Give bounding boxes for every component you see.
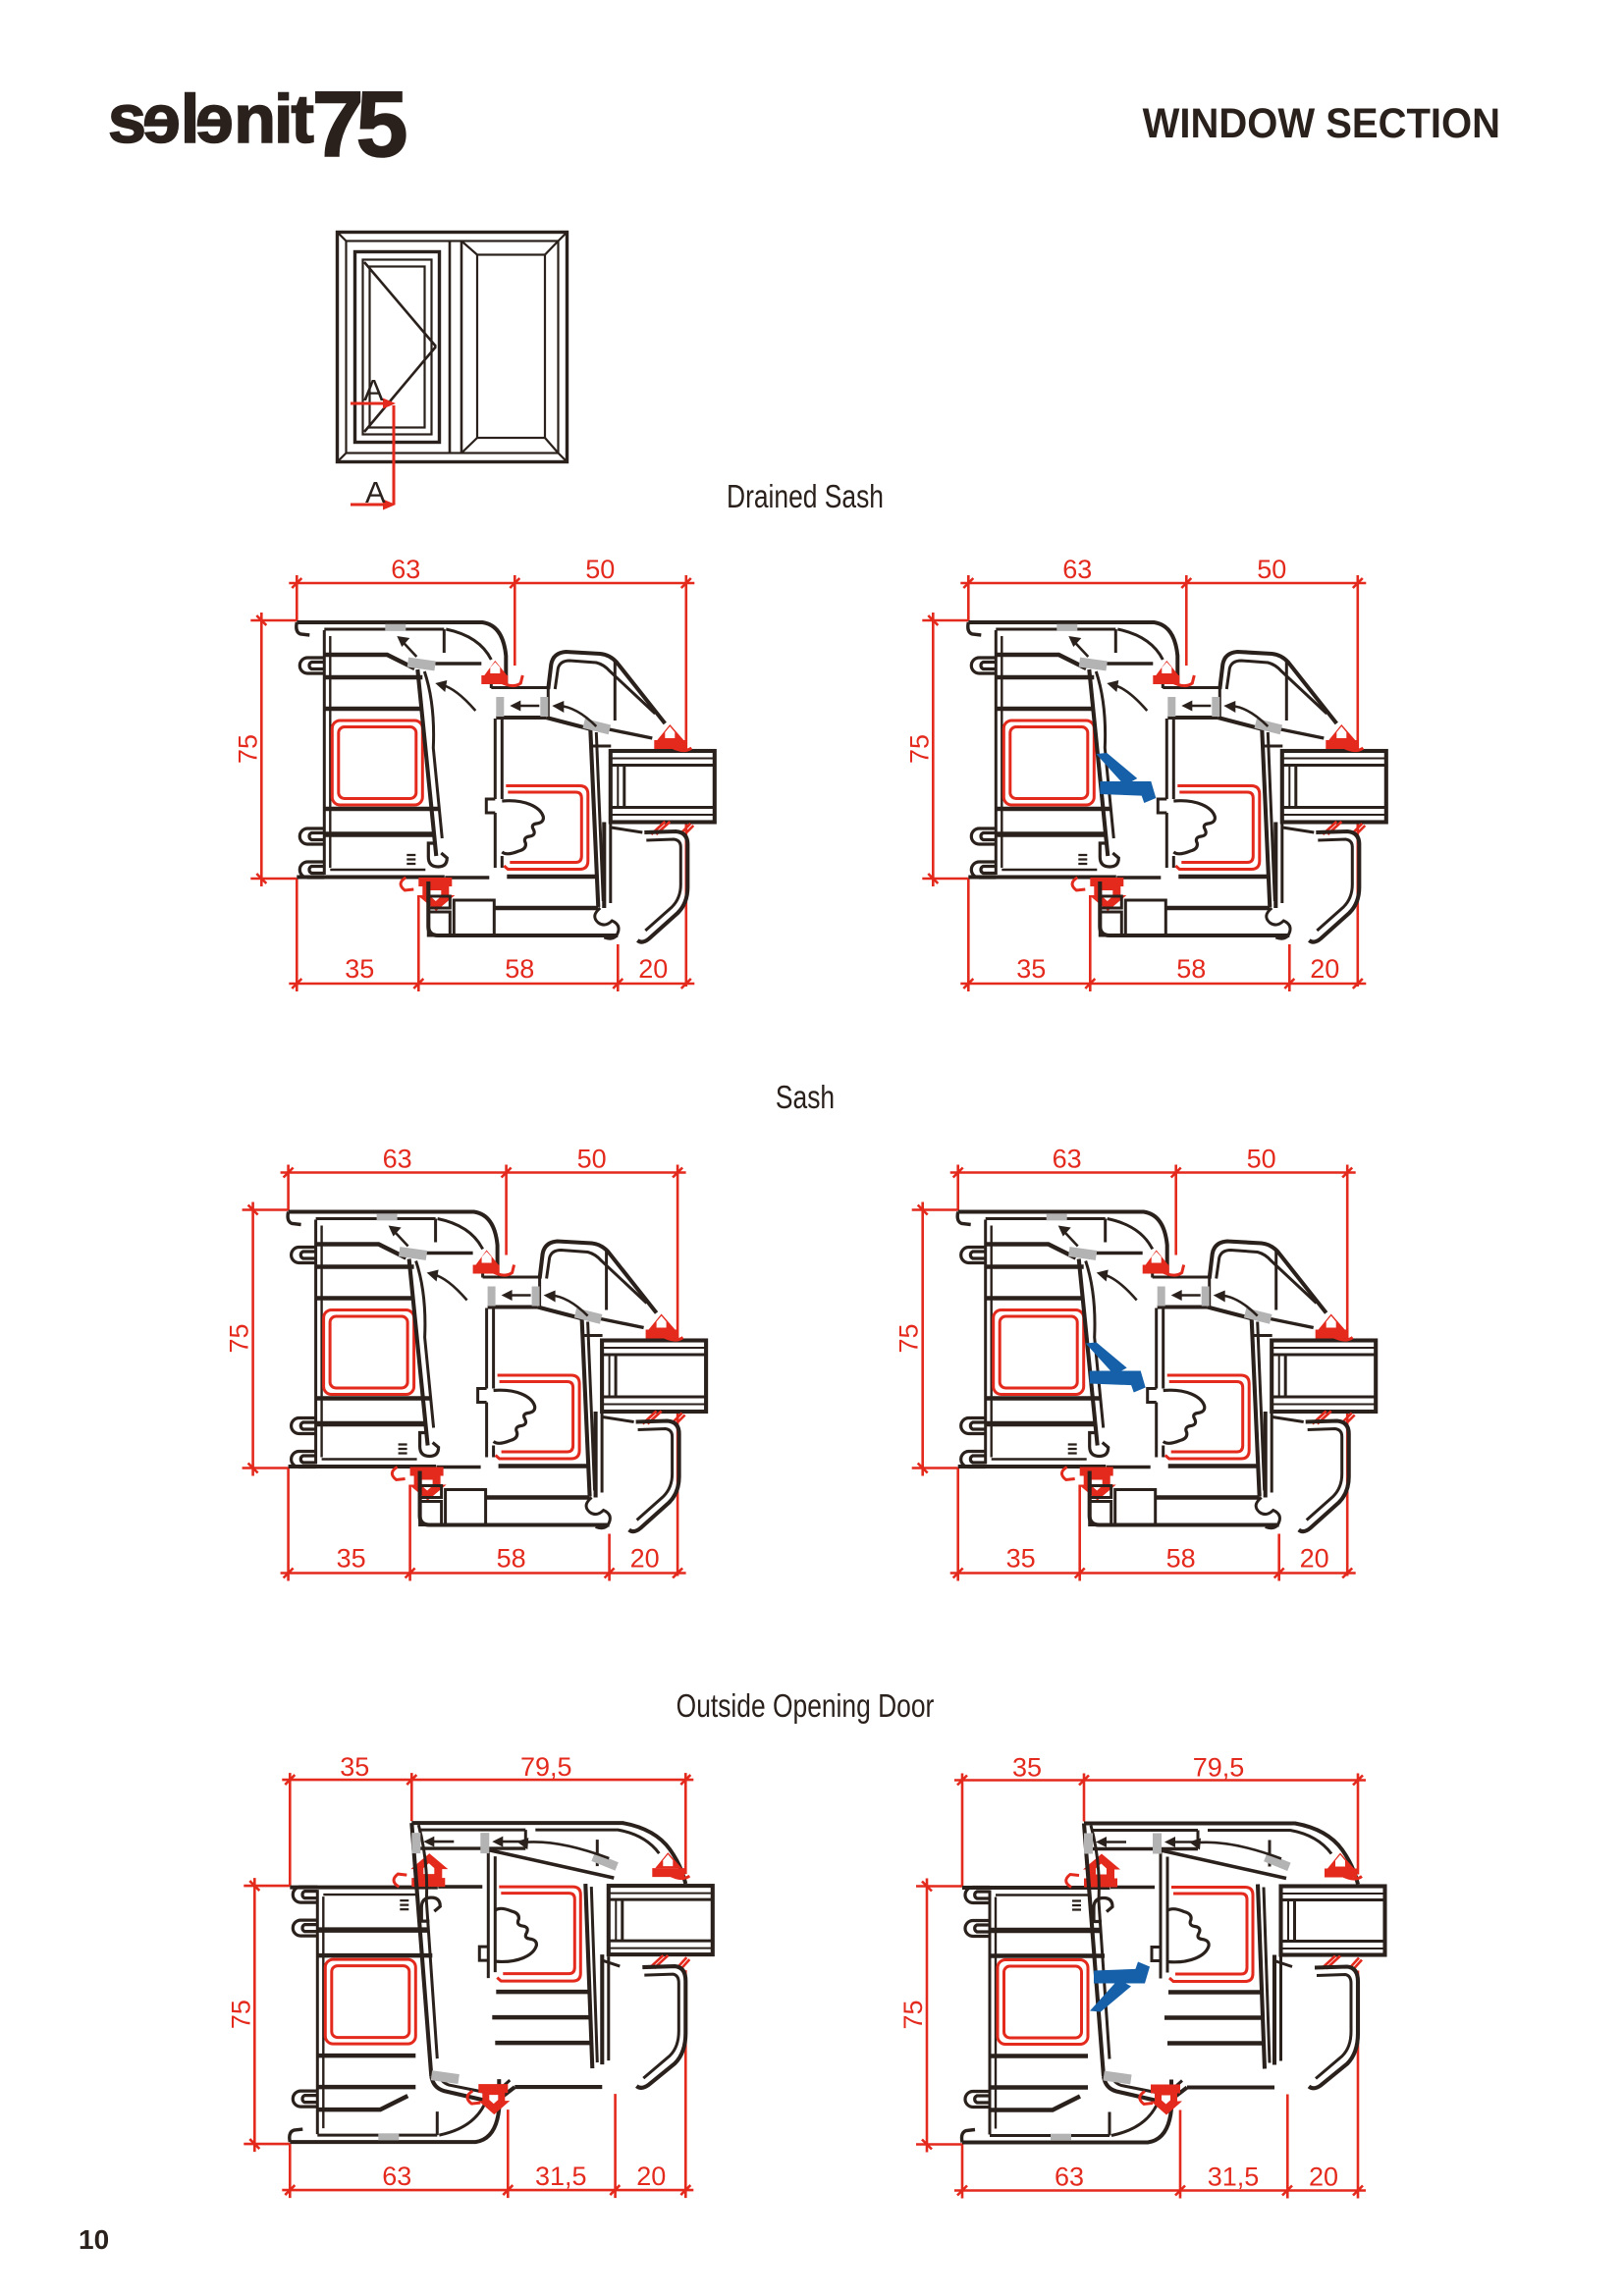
svg-text:A: A xyxy=(365,475,386,509)
svg-text:A: A xyxy=(363,373,384,407)
